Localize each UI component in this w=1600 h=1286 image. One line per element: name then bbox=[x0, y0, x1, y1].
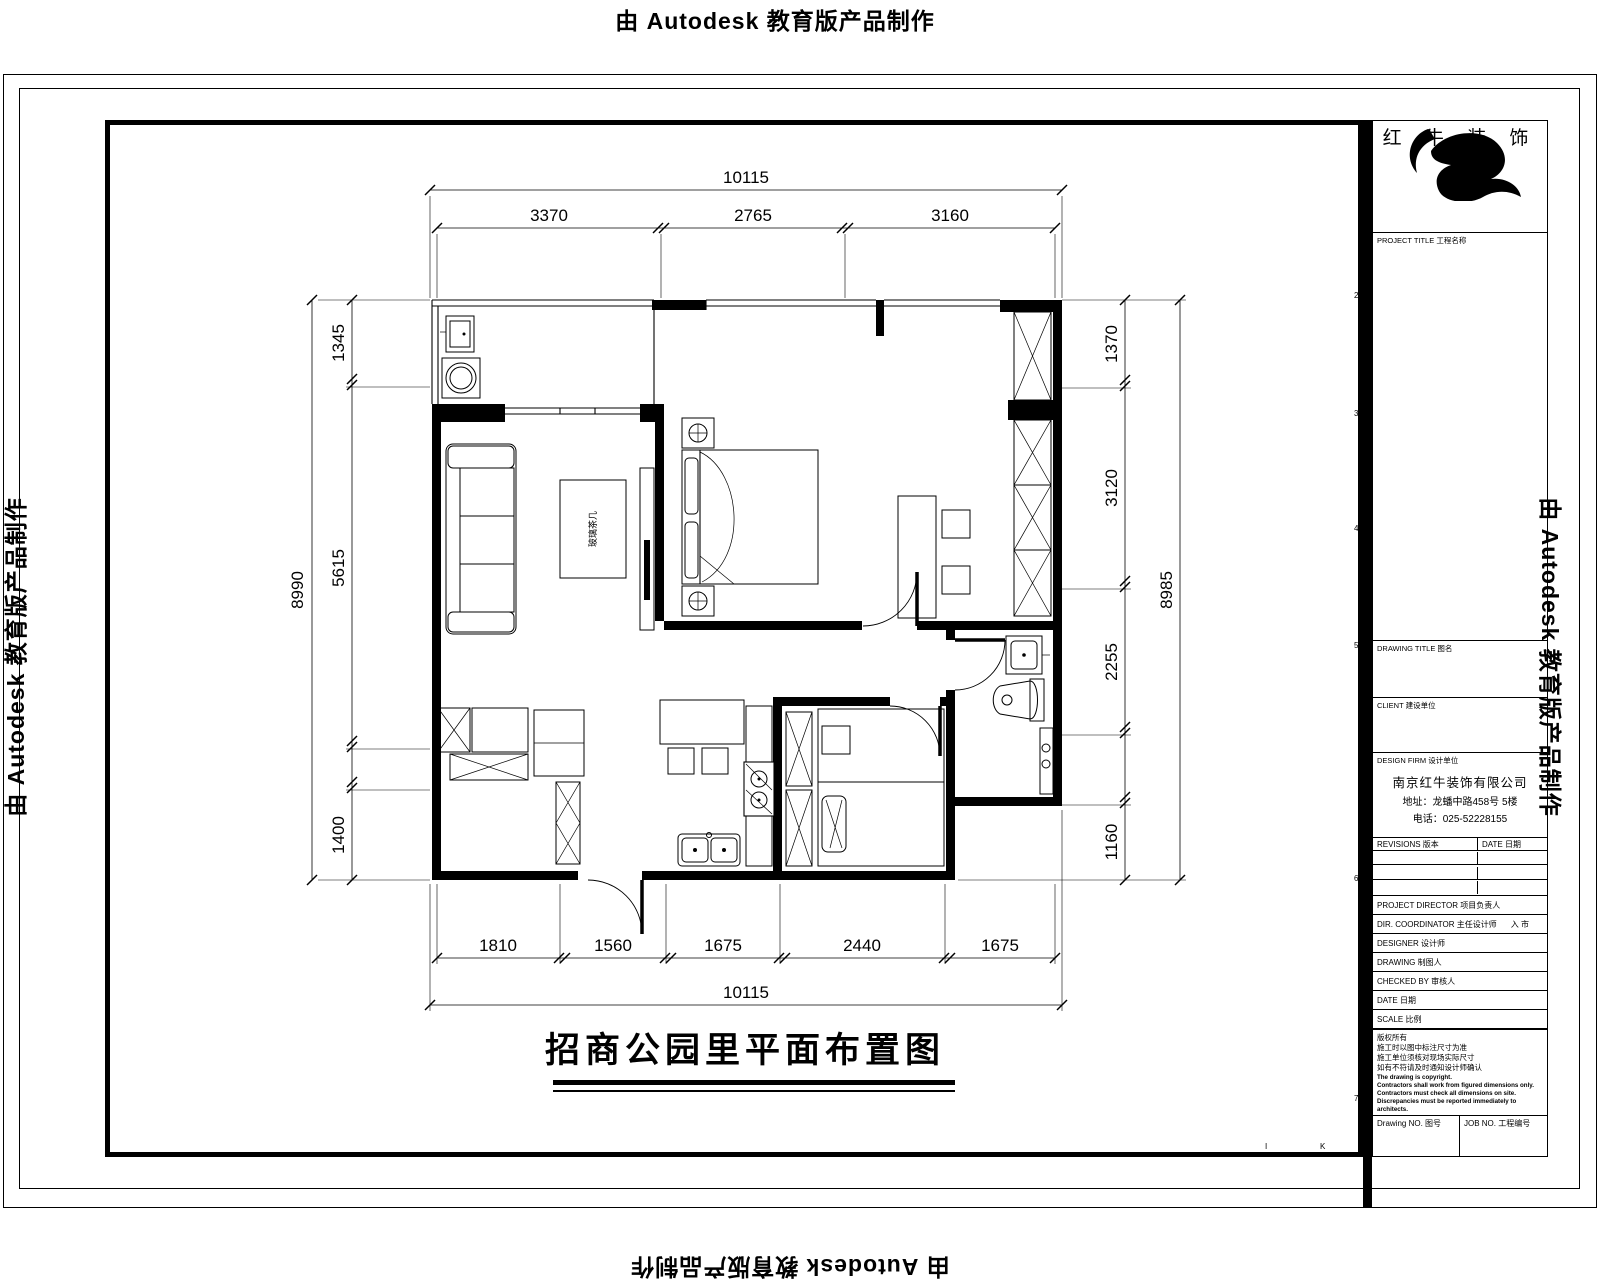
client-label: CLIENT 建设单位 bbox=[1373, 698, 1547, 711]
grid-mark: 3 bbox=[1354, 409, 1358, 418]
title-underline-thick bbox=[553, 1080, 955, 1085]
kitchen-table bbox=[660, 700, 744, 744]
dining-cabinets bbox=[438, 708, 584, 864]
title-block: 红 牛 装 饰 PROJECT TITLE 工程名称 DRAWING TITLE… bbox=[1372, 120, 1548, 1157]
chair bbox=[942, 510, 970, 538]
revision-row bbox=[1373, 867, 1477, 880]
tall-cabinet bbox=[556, 782, 580, 864]
dimensions-right: 1370 3120 2255 1160 8985 bbox=[1102, 295, 1185, 885]
balcony bbox=[440, 316, 480, 398]
design-firm-cell: DESIGN FIRM 设计单位 南京红牛装饰有限公司 地址：龙蟠中路458号 … bbox=[1373, 753, 1547, 838]
coffee-table-label: 玻璃茶几 bbox=[587, 511, 598, 547]
stool bbox=[702, 748, 728, 774]
copyright-notes: 版权所有 施工时以图中标注尺寸为准 施工单位须核对现场实际尺寸 如有不符请及时通… bbox=[1373, 1030, 1547, 1116]
dim-bottom-3: 1675 bbox=[704, 936, 742, 955]
windows bbox=[432, 300, 1000, 414]
signature-fields: PROJECT DIRECTOR 项目负责人 DIR. COORDINATOR … bbox=[1373, 896, 1547, 1030]
dim-left-1: 1345 bbox=[329, 324, 348, 362]
stool bbox=[668, 748, 694, 774]
dim-left-3: 1400 bbox=[329, 816, 348, 854]
field-dir-coordinator: DIR. COORDINATOR 主任设计师入 市 bbox=[1373, 915, 1547, 934]
bedroom2-door-arc bbox=[890, 706, 940, 756]
drawing-no-label: Drawing NO. 图号 bbox=[1373, 1116, 1459, 1157]
pillow bbox=[685, 458, 698, 514]
rednull-logo-icon bbox=[1373, 121, 1547, 201]
single-bed bbox=[818, 782, 944, 866]
job-no-label: JOB NO. 工程编号 bbox=[1459, 1116, 1547, 1157]
revision-row bbox=[1373, 852, 1477, 865]
tv-icon bbox=[644, 540, 650, 600]
grid-mark: K bbox=[1320, 1142, 1325, 1151]
pillow bbox=[685, 522, 698, 578]
grid-mark: 5 bbox=[1354, 641, 1358, 650]
grid-mark: 4 bbox=[1354, 524, 1358, 533]
logo-cell: 红 牛 装 饰 bbox=[1373, 121, 1547, 233]
kitchen-sink bbox=[678, 834, 740, 866]
bathroom bbox=[993, 636, 1053, 794]
project-title-label: PROJECT TITLE 工程名称 bbox=[1373, 233, 1547, 246]
kitchen bbox=[660, 700, 774, 866]
washing-machine bbox=[442, 358, 480, 398]
bedside-table bbox=[822, 726, 850, 754]
dim-top-2: 2765 bbox=[734, 206, 772, 225]
revisions-label: REVISIONS 版本 bbox=[1373, 838, 1477, 851]
shower-panel bbox=[1040, 728, 1053, 794]
field-drawing: DRAWING 制图人 bbox=[1373, 953, 1547, 972]
dim-top-total: 10115 bbox=[723, 168, 769, 187]
dim-left-2: 5615 bbox=[329, 549, 348, 587]
dim-bottom-2: 1560 bbox=[594, 936, 632, 955]
dim-bottom-total: 10115 bbox=[723, 983, 769, 1002]
dimensions-left: 8990 1345 5615 1400 bbox=[288, 295, 357, 885]
dim-top-1: 3370 bbox=[530, 206, 568, 225]
bathroom-door-arc bbox=[955, 640, 1005, 690]
field-project-director: PROJECT DIRECTOR 项目负责人 bbox=[1373, 896, 1547, 915]
toilet bbox=[993, 681, 1037, 719]
field-date: DATE 日期 bbox=[1373, 991, 1547, 1010]
cabinet bbox=[472, 708, 528, 752]
design-firm-label: DESIGN FIRM 设计单位 bbox=[1373, 753, 1547, 766]
field-designer: DESIGNER 设计师 bbox=[1373, 934, 1547, 953]
floor-plan: 玻璃茶几 bbox=[0, 0, 1600, 1280]
drawing-number-row: Drawing NO. 图号 JOB NO. 工程编号 bbox=[1373, 1116, 1547, 1157]
project-title-cell: PROJECT TITLE 工程名称 bbox=[1373, 233, 1547, 641]
dim-bottom-5: 1675 bbox=[981, 936, 1019, 955]
firm-address: 地址：龙蟠中路458号 5楼 bbox=[1373, 793, 1547, 808]
firm-name: 南京红牛装饰有限公司 bbox=[1373, 772, 1547, 791]
entry-door-arc bbox=[588, 880, 642, 934]
grid-mark: 6 bbox=[1354, 874, 1358, 883]
grid-mark: I bbox=[1265, 1142, 1267, 1151]
dim-bottom-4: 2440 bbox=[843, 936, 881, 955]
revision-date-label: DATE 日期 bbox=[1477, 838, 1547, 851]
plan-title: 招商公园里平面布置图 bbox=[445, 1022, 1045, 1073]
revision-row bbox=[1373, 881, 1477, 894]
living-room: 玻璃茶几 bbox=[446, 444, 654, 634]
dim-right-1: 1370 bbox=[1102, 325, 1121, 363]
master-bedroom bbox=[682, 312, 1051, 618]
dimensions-top: 10115 3370 2765 3160 bbox=[425, 168, 1067, 233]
revisions-table: REVISIONS 版本 DATE 日期 bbox=[1373, 838, 1547, 896]
second-bedroom bbox=[786, 709, 944, 866]
client-cell: CLIENT 建设单位 bbox=[1373, 698, 1547, 753]
grid-mark: 2 bbox=[1354, 291, 1358, 300]
dim-right-4: 1160 bbox=[1102, 824, 1121, 861]
wardrobe bbox=[1014, 312, 1051, 616]
chair bbox=[942, 566, 970, 594]
field-checked-by: CHECKED BY 审核人 bbox=[1373, 972, 1547, 991]
field-scale: SCALE 比例 bbox=[1373, 1010, 1547, 1029]
drawing-title-cell: DRAWING TITLE 图名 bbox=[1373, 641, 1547, 698]
sofa bbox=[446, 444, 516, 634]
title-underline-thin bbox=[553, 1090, 955, 1092]
firm-phone: 电话：025-52228155 bbox=[1373, 810, 1547, 825]
dim-right-3: 2255 bbox=[1102, 643, 1121, 681]
dimensions-bottom: 1810 1560 1675 2440 1675 10115 bbox=[425, 936, 1067, 1010]
dim-right-2: 3120 bbox=[1102, 469, 1121, 507]
dim-top-3: 3160 bbox=[931, 206, 969, 225]
dim-bottom-1: 1810 bbox=[479, 936, 517, 955]
bed bbox=[682, 450, 818, 584]
grid-mark: 7 bbox=[1354, 1094, 1358, 1103]
dim-right-total: 8985 bbox=[1157, 571, 1176, 609]
drawing-title-label: DRAWING TITLE 图名 bbox=[1373, 641, 1547, 654]
dim-left-total: 8990 bbox=[288, 571, 307, 609]
